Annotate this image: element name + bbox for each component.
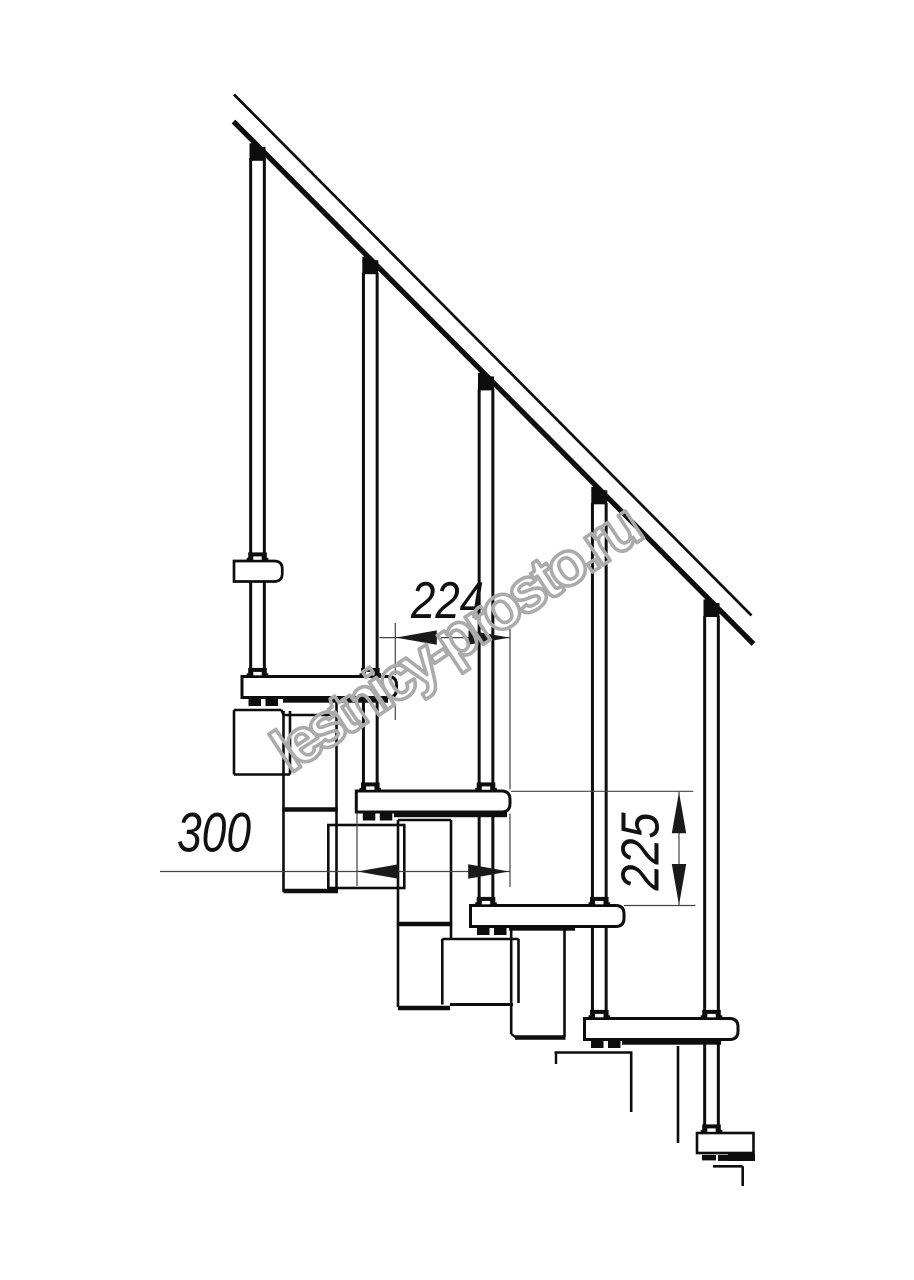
svg-text:300: 300 [177,801,251,864]
svg-text:225: 225 [611,812,671,892]
